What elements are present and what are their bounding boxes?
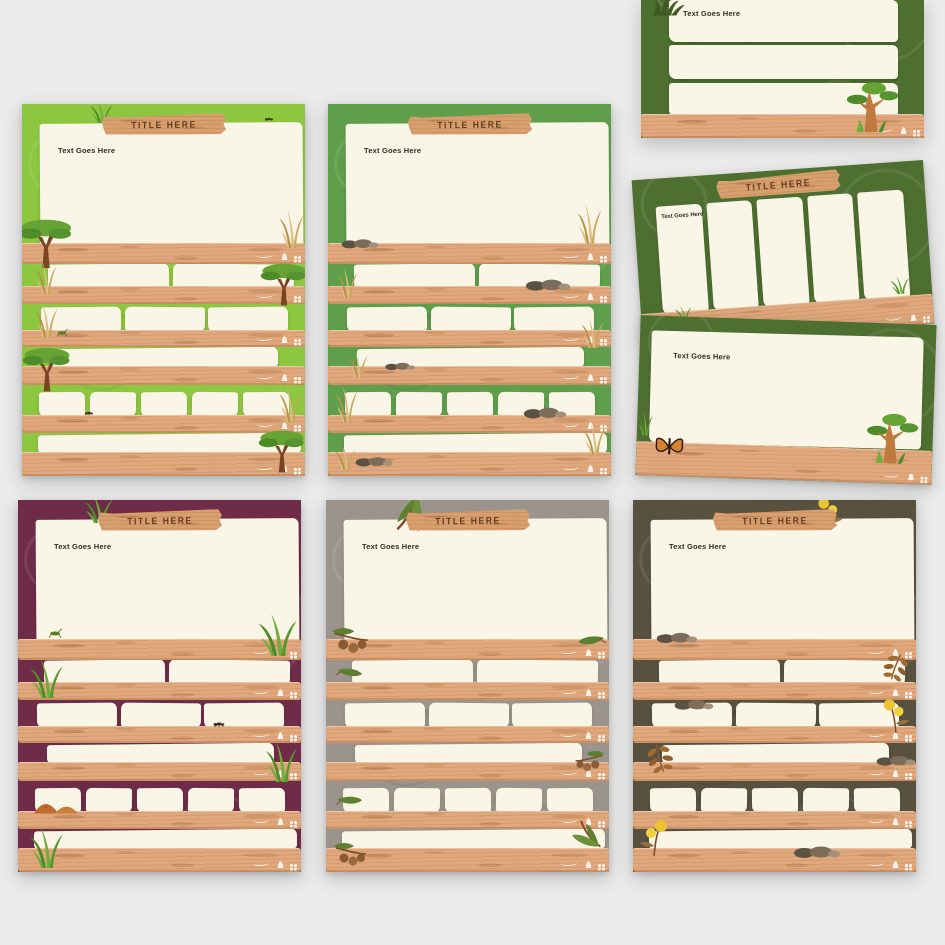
- animal-tracks-icon: [585, 769, 602, 777]
- text-box: [343, 788, 389, 813]
- animal-tracks-icon: [585, 648, 602, 656]
- text-box: [41, 307, 121, 333]
- main-text-paper: Text Goes Here: [649, 330, 924, 449]
- squiggle-trail-icon: [884, 471, 900, 477]
- squiggle-trail-icon: [563, 292, 579, 299]
- wood-plank: [22, 243, 305, 264]
- squiggle-trail-icon: [563, 252, 579, 259]
- animal-tracks-icon: [892, 817, 909, 825]
- wood-plank: [328, 330, 611, 347]
- animal-tracks-icon: [892, 731, 909, 739]
- five-box-row: [39, 392, 289, 417]
- squiggle-trail-icon: [253, 769, 269, 776]
- title-text: TITLE HERE: [435, 515, 501, 527]
- animal-tracks-icon: [892, 648, 909, 656]
- five-column-row: Text Goes Here: [656, 189, 911, 314]
- squiggle-trail-icon: [257, 373, 273, 380]
- main-text-paper: [344, 518, 608, 647]
- animal-tracks-icon: [281, 421, 298, 429]
- title-text: TITLE HERE: [131, 119, 197, 131]
- body-text: Text Goes Here: [54, 542, 111, 551]
- body-text: Text Goes Here: [364, 146, 421, 155]
- text-box: [736, 703, 816, 729]
- slide-template-green-portrait[interactable]: Text Goes Here TITLE HERE: [328, 104, 611, 476]
- text-box: [188, 788, 234, 813]
- animal-tracks-icon: [892, 769, 909, 777]
- animal-tracks-icon: [587, 373, 604, 381]
- text-box: [35, 788, 81, 813]
- animal-tracks-icon: [277, 731, 294, 739]
- wood-plank: [22, 366, 305, 385]
- one-box-row: [51, 348, 278, 368]
- one-box-row: [649, 830, 912, 850]
- animal-tracks-icon: [587, 252, 604, 260]
- title-text: TITLE HERE: [745, 177, 811, 193]
- squiggle-trail-icon: [561, 860, 577, 867]
- text-box: [549, 392, 595, 417]
- text-column: [807, 193, 860, 304]
- five-box-row: [345, 392, 595, 417]
- title-banner: TITLE HERE: [101, 113, 225, 136]
- slide-template-dark-rows: Text Goes Here: [641, 0, 924, 138]
- animal-tracks-icon: [585, 817, 602, 825]
- text-box: [803, 788, 849, 813]
- title-banner: TITLE HERE: [407, 113, 531, 136]
- squiggle-trail-icon: [253, 688, 269, 695]
- text-row-box: [669, 45, 898, 79]
- squiggle-trail-icon: [257, 421, 273, 428]
- animal-tracks-icon: [587, 335, 604, 343]
- title-text: TITLE HERE: [127, 515, 193, 527]
- text-box: [547, 788, 593, 813]
- main-text-paper: [36, 518, 300, 647]
- squiggle-trail-icon: [257, 292, 273, 299]
- wood-plank: [326, 848, 609, 872]
- text-box: [512, 703, 592, 729]
- squiggle-trail-icon: [253, 860, 269, 867]
- squiggle-trail-icon: [561, 769, 577, 776]
- text-box: [137, 788, 183, 813]
- one-box-row: [344, 434, 607, 454]
- wood-plank: [328, 243, 611, 264]
- slide-template-olive-portrait[interactable]: Text Goes Here TITLE HERE: [633, 500, 916, 872]
- text-box: [345, 392, 391, 417]
- text-box: [445, 788, 491, 813]
- squiggle-trail-icon: [563, 421, 579, 428]
- three-box-row: [652, 703, 899, 728]
- squiggle-trail-icon: [868, 860, 884, 867]
- text-box: [447, 392, 493, 417]
- text-box: [239, 788, 285, 813]
- main-text-paper: [346, 122, 610, 251]
- body-text: Text Goes Here: [673, 351, 730, 361]
- wood-plank: [641, 114, 924, 138]
- animal-tracks-icon: [892, 860, 909, 868]
- body-text: Text Goes Here: [661, 211, 703, 220]
- text-box: [752, 788, 798, 813]
- squiggle-trail-icon: [257, 252, 273, 259]
- wood-plank: [326, 682, 609, 700]
- three-box-row: [37, 703, 284, 728]
- animal-tracks-icon: [281, 292, 298, 300]
- text-box: [854, 788, 900, 813]
- text-box: [141, 392, 187, 417]
- text-box: [347, 307, 427, 333]
- text-column: [706, 200, 759, 311]
- animal-tracks-icon: [585, 688, 602, 696]
- squiggle-trail-icon: [868, 648, 884, 655]
- ant-icon: [264, 116, 274, 122]
- text-box: [394, 788, 440, 813]
- wood-plank: [18, 848, 301, 872]
- text-box: [125, 307, 205, 333]
- squiggle-trail-icon: [886, 313, 903, 321]
- animal-tracks-icon: [281, 252, 298, 260]
- animal-tracks-icon: [587, 292, 604, 300]
- text-box: [496, 788, 542, 813]
- animal-tracks-icon: [277, 769, 294, 777]
- slide-template-lime-portrait[interactable]: Text Goes Here TITLE HERE: [22, 104, 305, 476]
- squiggle-trail-icon: [868, 731, 884, 738]
- wood-plank: [326, 726, 609, 743]
- text-box: [121, 703, 201, 729]
- one-box-row: [662, 744, 889, 764]
- text-box: [650, 788, 696, 813]
- text-box: [514, 307, 594, 333]
- text-box: [345, 703, 425, 729]
- wood-plank: [22, 415, 305, 433]
- text-box: [192, 392, 238, 417]
- squiggle-trail-icon: [868, 688, 884, 695]
- wood-plank: [328, 286, 611, 304]
- squiggle-trail-icon: [561, 648, 577, 655]
- text-box: [86, 788, 132, 813]
- animal-tracks-icon: [587, 464, 604, 472]
- animal-tracks-icon: [900, 126, 917, 134]
- squiggle-trail-icon: [253, 648, 269, 655]
- wood-plank: [18, 639, 301, 660]
- text-box: [37, 703, 117, 729]
- title-text: TITLE HERE: [742, 515, 808, 527]
- squiggle-trail-icon: [868, 817, 884, 824]
- text-box: [396, 392, 442, 417]
- squiggle-trail-icon: [876, 126, 892, 133]
- main-text-paper: [40, 122, 304, 251]
- one-box-row: [38, 434, 301, 454]
- animal-tracks-icon: [281, 373, 298, 381]
- text-row-box: Text Goes Here: [669, 0, 898, 42]
- squiggle-trail-icon: [257, 464, 273, 471]
- text-column: [857, 189, 910, 300]
- text-box: [819, 703, 899, 729]
- wood-plank: [326, 639, 609, 660]
- slide-template-gray-portrait[interactable]: Text Goes Here TITLE HERE: [326, 500, 609, 872]
- animal-tracks-icon: [907, 472, 924, 481]
- squiggle-trail-icon: [561, 688, 577, 695]
- squiggle-trail-icon: [563, 335, 579, 342]
- text-box: [39, 392, 85, 417]
- wood-plank: [22, 330, 305, 347]
- three-box-row: [345, 703, 592, 728]
- body-text: Text Goes Here: [362, 542, 419, 551]
- wood-plank: [328, 415, 611, 433]
- wood-plank: [633, 639, 916, 660]
- title-banner: TITLE HERE: [712, 509, 836, 532]
- wood-plank: [633, 762, 916, 781]
- body-text: Text Goes Here: [58, 146, 115, 155]
- squiggle-trail-icon: [563, 464, 579, 471]
- text-box: [701, 788, 747, 813]
- text-box: [208, 307, 288, 333]
- one-box-row: [357, 348, 584, 368]
- animal-tracks-icon: [277, 688, 294, 696]
- text-row-box: [669, 83, 898, 117]
- animal-tracks-icon: [277, 860, 294, 868]
- animal-tracks-icon: [281, 464, 298, 472]
- one-box-row: [34, 830, 297, 850]
- squiggle-trail-icon: [257, 335, 273, 342]
- title-banner: TITLE HERE: [405, 509, 529, 532]
- squiggle-trail-icon: [561, 731, 577, 738]
- wood-plank: [326, 762, 609, 781]
- wood-plank: [18, 811, 301, 829]
- body-text: Text Goes Here: [683, 9, 740, 18]
- squiggle-trail-icon: [253, 817, 269, 824]
- text-box: [431, 307, 511, 333]
- slide-template-maroon-portrait[interactable]: Text Goes Here TITLE HERE: [18, 500, 301, 872]
- wood-plank: [633, 726, 916, 743]
- text-box: [429, 703, 509, 729]
- main-text-paper: [651, 518, 915, 647]
- squiggle-trail-icon: [253, 731, 269, 738]
- body-text: Text Goes Here: [669, 542, 726, 551]
- text-box: [90, 392, 136, 417]
- wood-plank: [22, 452, 305, 476]
- text-box: [243, 392, 289, 417]
- text-box: [652, 703, 732, 729]
- wood-plank: [326, 811, 609, 829]
- text-column: [756, 197, 809, 308]
- wood-plank: [328, 366, 611, 385]
- five-box-row: [650, 788, 900, 813]
- squiggle-trail-icon: [561, 817, 577, 824]
- three-box-row: [41, 307, 288, 332]
- animal-tracks-icon: [277, 817, 294, 825]
- animal-tracks-icon: [281, 335, 298, 343]
- animal-tracks-icon: [892, 688, 909, 696]
- title-text: TITLE HERE: [437, 119, 503, 131]
- wood-plank: [633, 682, 916, 700]
- wood-plank: [633, 811, 916, 829]
- wood-plank: [18, 726, 301, 743]
- one-box-row: [355, 744, 582, 764]
- wood-plank: [18, 762, 301, 781]
- squiggle-trail-icon: [868, 769, 884, 776]
- animal-tracks-icon: [585, 860, 602, 868]
- animal-tracks-icon: [910, 312, 928, 321]
- animal-tracks-icon: [585, 731, 602, 739]
- one-box-row: [342, 830, 605, 850]
- wood-plank: [633, 848, 916, 872]
- animal-tracks-icon: [277, 648, 294, 656]
- text-box: [498, 392, 544, 417]
- slide-template-dark-rows-clip[interactable]: Text Goes Here: [641, 0, 924, 138]
- template-preview-page: { "page": { "background_color": "#ebebeb…: [0, 0, 945, 945]
- three-box-row: [347, 307, 594, 332]
- text-box: [204, 703, 284, 729]
- slide-template-dark-text[interactable]: Text Goes Here: [635, 315, 936, 485]
- wood-plank: [328, 452, 611, 476]
- title-banner: TITLE HERE: [97, 509, 221, 532]
- one-box-row: [47, 744, 274, 764]
- squiggle-trail-icon: [563, 373, 579, 380]
- five-box-row: [343, 788, 593, 813]
- animal-tracks-icon: [587, 421, 604, 429]
- wood-plank: [22, 286, 305, 304]
- five-box-row: [35, 788, 285, 813]
- wood-plank: [18, 682, 301, 700]
- text-column: Text Goes Here: [656, 204, 709, 315]
